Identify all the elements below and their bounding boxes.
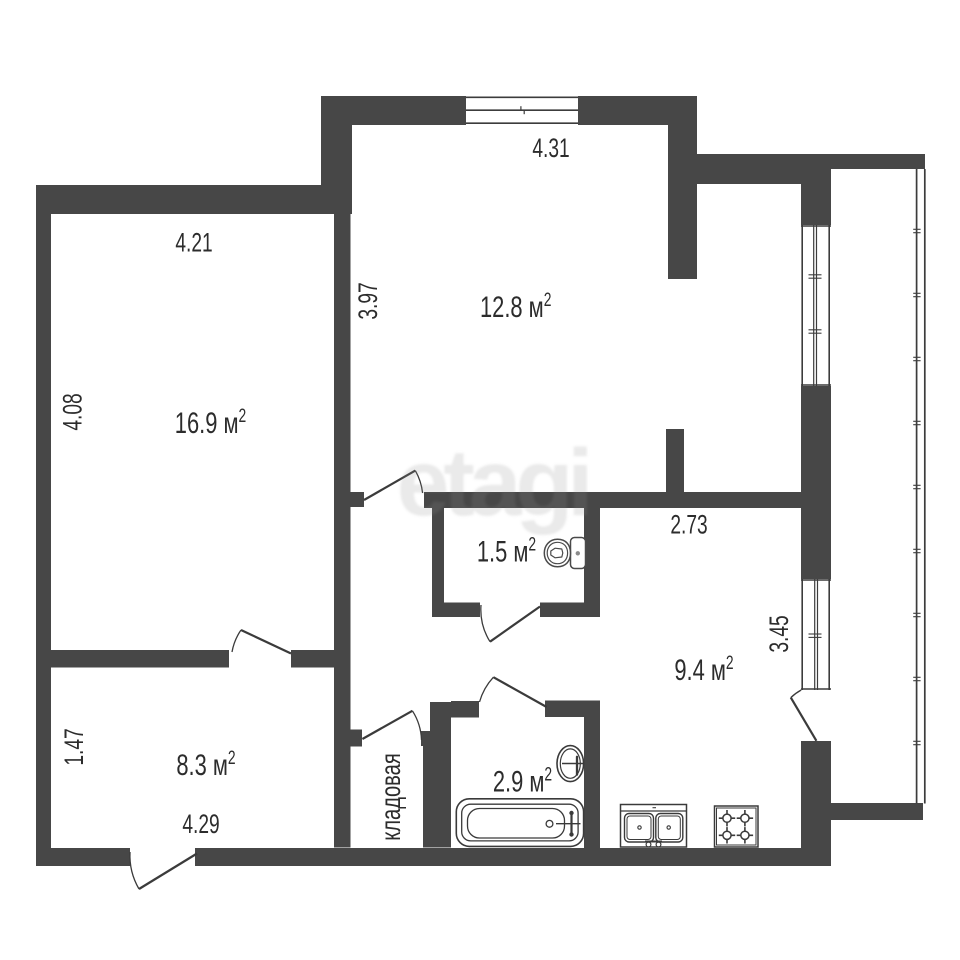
svg-text:1.5 м2: 1.5 м2 [477,533,536,568]
svg-text:16.9 м2: 16.9 м2 [175,405,246,440]
svg-text:2.73: 2.73 [670,509,707,539]
svg-text:кладовая: кладовая [376,753,407,841]
svg-text:3.45: 3.45 [764,615,794,652]
svg-text:3.97: 3.97 [353,282,383,319]
svg-text:4.31: 4.31 [532,133,569,163]
svg-text:4.08: 4.08 [57,393,87,430]
svg-text:1.47: 1.47 [59,728,89,765]
svg-text:9.4 м2: 9.4 м2 [674,652,733,687]
svg-text:etagi: etagi [397,430,588,536]
svg-text:4.29: 4.29 [182,809,219,839]
svg-text:2.9 м2: 2.9 м2 [493,763,552,798]
svg-text:4.21: 4.21 [175,227,212,257]
svg-text:8.3 м2: 8.3 м2 [176,747,235,782]
svg-text:12.8 м2: 12.8 м2 [480,289,551,324]
